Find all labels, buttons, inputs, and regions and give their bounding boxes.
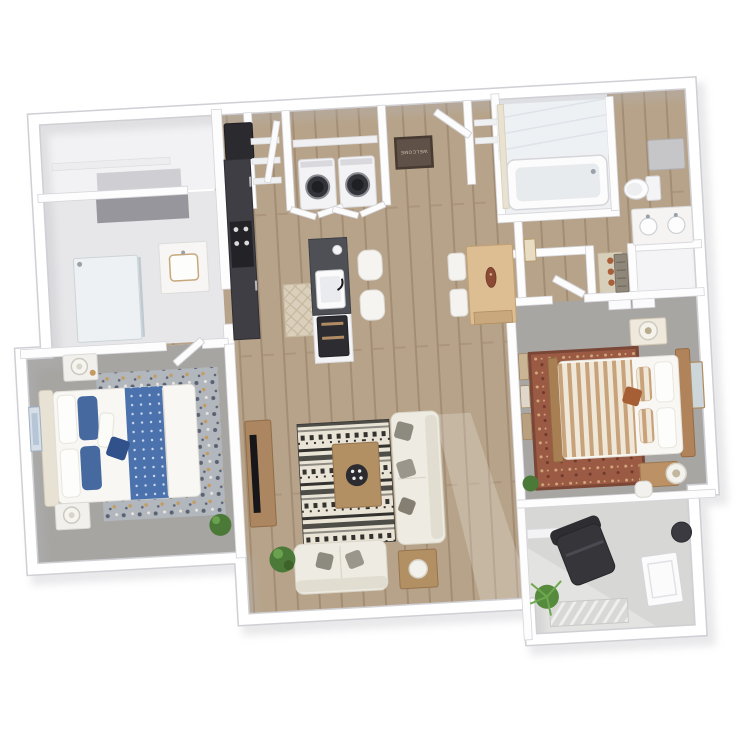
entry-closet-shelf-2	[475, 137, 497, 144]
floorplan-3d: WELCOME	[0, 0, 750, 750]
bed-a-duvet-blue	[125, 386, 169, 500]
gallery-frame-1	[518, 353, 528, 379]
bed-a-pillow-blue-1	[77, 396, 99, 441]
paper-towel	[332, 245, 341, 254]
stool-1	[357, 249, 383, 280]
vanity-b-sink-1	[639, 218, 657, 236]
entry-closet-shelf-1	[474, 119, 496, 126]
pantry-shelf-2	[252, 157, 280, 165]
bed-b-lumbar-2	[639, 409, 655, 444]
over-toilet-cabinet	[648, 138, 686, 170]
balcony-door	[641, 552, 684, 607]
bed-b-pillow-white-1	[654, 361, 674, 402]
stool-2	[360, 289, 386, 320]
dining-table-shelf	[474, 310, 513, 324]
side-table-sphere	[409, 559, 428, 578]
shower-a	[73, 255, 142, 342]
bed-a-pillow-white-2	[60, 449, 81, 498]
desk-chair-b	[635, 481, 653, 498]
gallery-frame-3	[522, 413, 532, 439]
balcony-mat	[549, 598, 628, 626]
plan-rotated-group: WELCOME	[8, 83, 728, 676]
bed-b-duvet-striped	[558, 360, 637, 458]
vanity-b-sink-2	[667, 216, 685, 234]
closet-b-east-fill	[636, 246, 702, 294]
gallery-frame-2	[520, 385, 530, 407]
closet-b-dresser	[614, 254, 629, 293]
dining-wall-art	[524, 239, 536, 262]
balcony-grill	[671, 522, 692, 543]
bed-a-pillow-white-1	[57, 395, 78, 444]
bedroom-b-wall-art	[690, 362, 705, 409]
stove	[230, 221, 255, 268]
vanity-a-sink	[169, 254, 198, 282]
floorplan-canvas: WELCOME	[0, 0, 750, 750]
bathtub-basin	[515, 163, 601, 202]
closet-b-door-1	[609, 300, 631, 310]
dining-chair-1	[448, 253, 466, 281]
fridge	[224, 122, 254, 160]
bed-a-pillow-blue-2	[80, 445, 102, 490]
closet-b-door-2	[632, 298, 654, 308]
dining-chair-2	[450, 289, 468, 317]
bed-b-pillow-white-2	[657, 407, 677, 448]
